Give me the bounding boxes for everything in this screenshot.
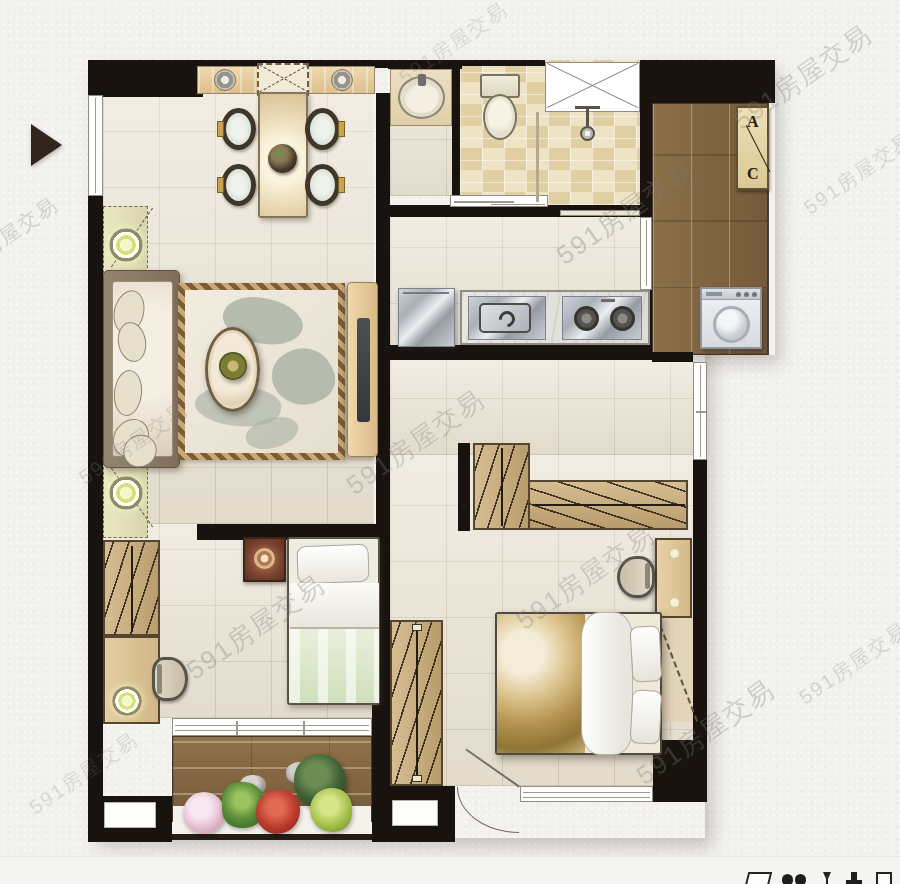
stove (562, 296, 642, 340)
wall (452, 60, 460, 205)
floorplan-canvas: A C (0, 0, 900, 884)
wall (88, 60, 203, 97)
toolbar-icon-gallery[interactable] (744, 872, 772, 884)
wall (388, 60, 462, 69)
wall (376, 93, 390, 282)
master-wardrobe-run (528, 480, 688, 530)
dining-chair-arm (217, 121, 224, 137)
tv-screen (357, 318, 370, 422)
refrigerator (398, 288, 455, 347)
wall (458, 443, 470, 531)
wall-vent-cutout (392, 800, 438, 826)
dining-chair-arm (338, 121, 345, 137)
master-desk (655, 538, 692, 618)
watermark-text: 591房屋交易 (799, 126, 900, 221)
dining-chair (305, 164, 340, 206)
ac-label-bottom: C (747, 166, 759, 182)
wall-vent-cutout (104, 802, 156, 828)
coffee-table-plant (219, 352, 247, 380)
plant-bush-pink (183, 792, 225, 834)
shower-bar (575, 106, 600, 109)
toolbar-icon-dots[interactable] (782, 872, 808, 884)
ceiling-lamp (109, 476, 143, 510)
washing-machine (700, 287, 762, 349)
master-desk-chair (617, 556, 655, 598)
ac-unit-board: A C (736, 106, 769, 190)
wall (88, 196, 103, 796)
utility-balcony-margin (768, 103, 775, 355)
desk-lamp (112, 686, 142, 716)
single-bed (287, 537, 380, 705)
utility-balcony-door (640, 217, 652, 290)
master-bedroom-window (520, 786, 653, 802)
dining-chair-arm (338, 177, 345, 193)
shower-head-icon (580, 126, 595, 141)
area-rug (178, 283, 345, 460)
watermark-text: 591房屋交易 (794, 616, 900, 711)
toolbar-icon-share[interactable] (846, 872, 862, 884)
dining-chair-arm (217, 177, 224, 193)
dining-chair (221, 164, 256, 206)
double-bed-duvet (581, 612, 633, 755)
wall (640, 103, 652, 217)
window-right (693, 362, 707, 460)
toolbar-icon-pin[interactable] (822, 872, 830, 884)
balcony-edge-line (172, 834, 372, 840)
single-bed-pillow (296, 544, 369, 584)
ceiling-lamp (109, 228, 143, 262)
desk-chair (152, 657, 188, 701)
dining-chair (305, 108, 340, 150)
bath-divider-line (536, 112, 539, 202)
wall (376, 282, 390, 540)
nightstand-second-bedroom (243, 537, 286, 582)
washbasin-faucet (418, 74, 426, 86)
single-bed-blanket (290, 629, 379, 703)
dining-chair (221, 108, 256, 150)
sideboard-decor-rosette (214, 69, 236, 91)
bathroom-sliding-door (450, 195, 548, 207)
toolbar-icon-frame[interactable] (876, 872, 892, 884)
double-bed-pillow (630, 625, 663, 682)
shower-pipe (586, 108, 589, 126)
master-wardrobe-tall (390, 620, 443, 786)
wardrobe-second-bedroom (103, 540, 160, 636)
wall (640, 60, 775, 103)
second-bedroom-window (172, 718, 372, 736)
wall (652, 352, 693, 362)
wall (460, 60, 545, 66)
entrance-arrow-icon (31, 124, 62, 166)
kitchen-sink (468, 296, 546, 340)
table-centerpiece-leaf (276, 150, 284, 158)
single-bed-sheet (290, 583, 379, 629)
double-bed (495, 612, 662, 755)
ac-label-top: A (747, 114, 759, 130)
double-bed-blanket (497, 614, 585, 753)
wall (390, 345, 652, 360)
table-centerpiece (268, 144, 297, 173)
floor-corridor (390, 360, 693, 455)
double-bed-pillow (630, 689, 663, 744)
bathroom-window-x (545, 62, 640, 112)
toilet-bowl (483, 94, 517, 140)
plant-bush-lightgreen (310, 788, 352, 832)
window-left (88, 95, 103, 196)
watermark-text: 591房屋交易 (0, 191, 64, 286)
hallway-sliding-door (560, 210, 640, 216)
sideboard-decor-rosette (331, 69, 353, 91)
master-wardrobe-corner (473, 443, 530, 530)
